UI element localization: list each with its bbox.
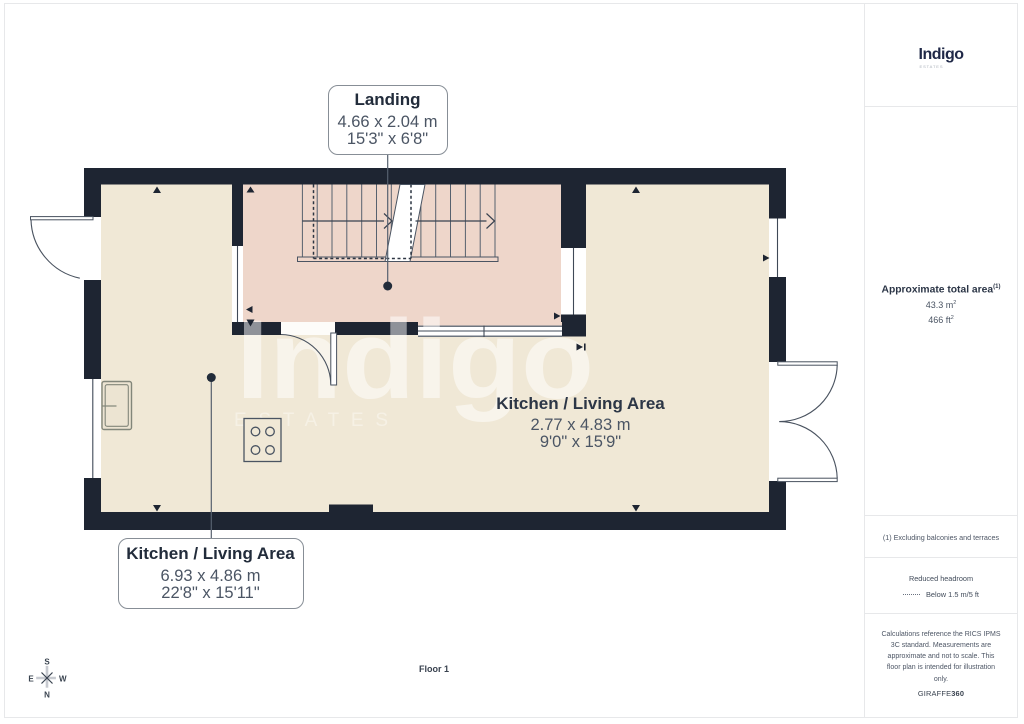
svg-text:W: W xyxy=(59,674,67,683)
svg-text:N: N xyxy=(44,691,50,700)
svg-text:S: S xyxy=(44,658,50,667)
svg-text:E: E xyxy=(28,674,34,683)
